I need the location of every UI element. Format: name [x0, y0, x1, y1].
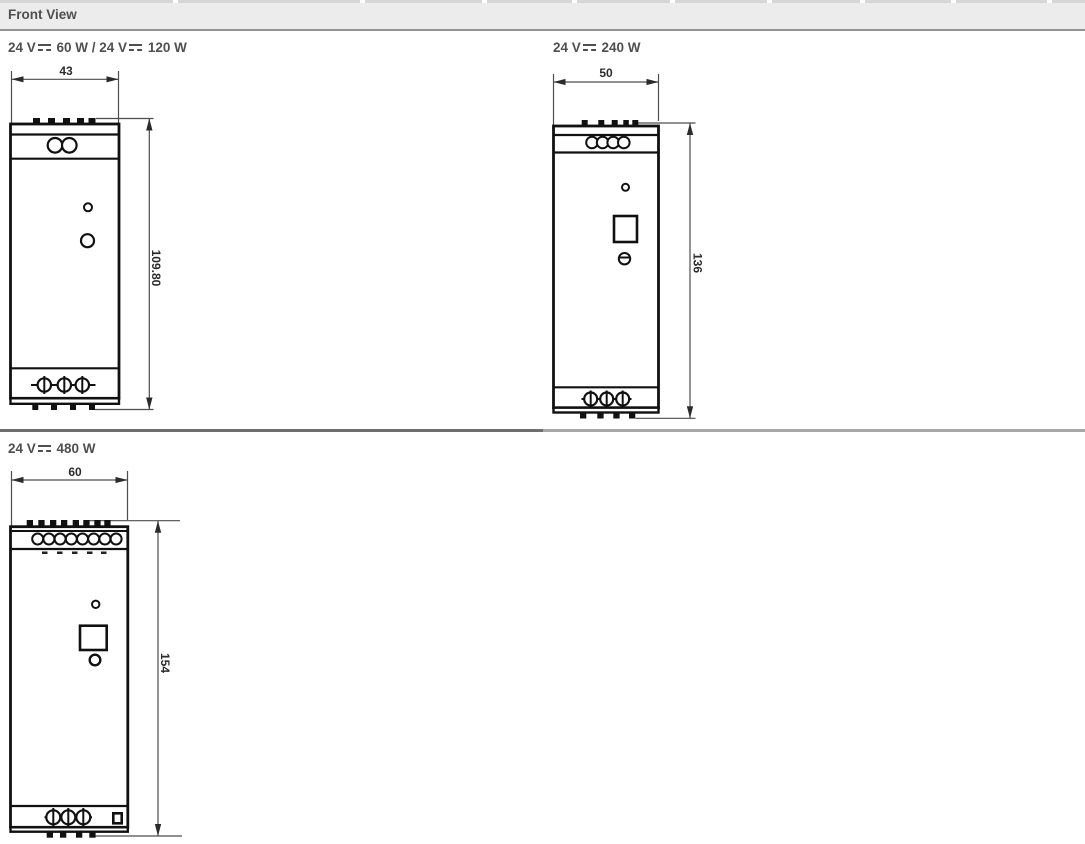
- screw-terminals: [582, 391, 632, 408]
- arrow-right-icon: [647, 79, 659, 85]
- front-view-header: Front View: [0, 0, 1085, 31]
- arrow-down-icon: [155, 824, 161, 836]
- mounting-feet: [32, 405, 95, 410]
- width-dimension-label: 43: [59, 64, 73, 78]
- adjustment-potentiometer: [81, 234, 94, 247]
- top-border-gap: [767, 0, 772, 3]
- top-terminal-row: [32, 534, 121, 545]
- top-border-gap: [482, 0, 487, 3]
- led-indicator: [84, 203, 92, 211]
- arrow-down-icon: [687, 406, 693, 418]
- screw-terminals: [31, 376, 96, 394]
- top-border-gap: [951, 0, 956, 3]
- table-top-border: [0, 0, 1085, 3]
- connector-slot: [113, 813, 121, 823]
- top-border-gap: [173, 0, 178, 3]
- variant-section-240w: 24 V 240 W 50 136: [540, 36, 1085, 429]
- top-clips: [27, 520, 111, 526]
- height-dimension: [636, 123, 696, 418]
- led-indicator: [92, 601, 99, 608]
- device-front-outline: [554, 120, 659, 419]
- device-front-outline: [11, 520, 128, 838]
- dc-symbol-icon: [38, 42, 51, 53]
- adjustment-potentiometer: [90, 655, 101, 666]
- adjustment-potentiometer: [619, 253, 630, 264]
- top-border-gap: [360, 0, 365, 3]
- switch-window: [80, 626, 107, 650]
- vent-slots: [42, 552, 107, 555]
- dimension-drawing-240w: 50 136: [540, 55, 760, 429]
- variant-title: 24 V 60 W / 24 V 120 W: [8, 40, 187, 55]
- top-border-gap: [572, 0, 577, 3]
- base-plate: [11, 398, 120, 404]
- arrow-left-icon: [12, 76, 24, 82]
- height-dimension: [87, 521, 182, 836]
- width-dimension: [554, 74, 659, 125]
- arrow-left-icon: [12, 477, 24, 483]
- device-front-outline: [11, 118, 120, 410]
- page-title: Front View: [8, 7, 77, 22]
- top-border-gap: [1047, 0, 1052, 3]
- row-divider-left: [0, 429, 543, 432]
- arrow-left-icon: [554, 79, 566, 85]
- variant-section-60w-120w: 24 V 60 W / 24 V 120 W 43 109.80: [0, 36, 540, 429]
- dimension-drawing-480w: 60 154: [0, 440, 200, 844]
- arrow-right-icon: [116, 477, 128, 483]
- top-terminal-row: [586, 137, 629, 149]
- row-divider-right: [543, 429, 1085, 432]
- arrow-up-icon: [146, 119, 152, 131]
- dc-symbol-icon: [583, 42, 596, 53]
- screw-terminals: [45, 808, 93, 827]
- mounting-feet: [47, 832, 96, 838]
- width-dimension: [12, 71, 119, 123]
- arrow-right-icon: [107, 76, 119, 82]
- width-dimension: [12, 471, 128, 526]
- arrow-down-icon: [146, 398, 152, 410]
- arrow-up-icon: [155, 521, 161, 533]
- top-border-gap: [860, 0, 865, 3]
- height-dimension-label: 136: [690, 253, 704, 273]
- top-terminal-row: [48, 138, 77, 153]
- top-border-gap: [670, 0, 675, 3]
- height-dimension-label: 109.80: [149, 250, 163, 287]
- dimension-drawing-60w-120w: 43 109.80: [0, 55, 200, 429]
- height-dimension-label: 154: [158, 653, 172, 673]
- dc-symbol-icon: [129, 42, 142, 53]
- mounting-feet: [580, 413, 635, 418]
- width-dimension-label: 60: [68, 465, 82, 479]
- led-indicator: [622, 184, 629, 191]
- width-dimension-label: 50: [599, 66, 613, 80]
- base-plate: [11, 827, 128, 831]
- switch-window: [614, 216, 637, 242]
- variant-section-480w: 24 V 480 W 60 154: [0, 436, 545, 844]
- base-plate: [554, 408, 659, 413]
- arrow-up-icon: [687, 123, 693, 135]
- height-dimension: [95, 119, 154, 410]
- variant-title: 24 V 240 W: [553, 40, 641, 55]
- page-root: Front View 24 V 60 W / 24 V 120 W 43: [0, 0, 1085, 844]
